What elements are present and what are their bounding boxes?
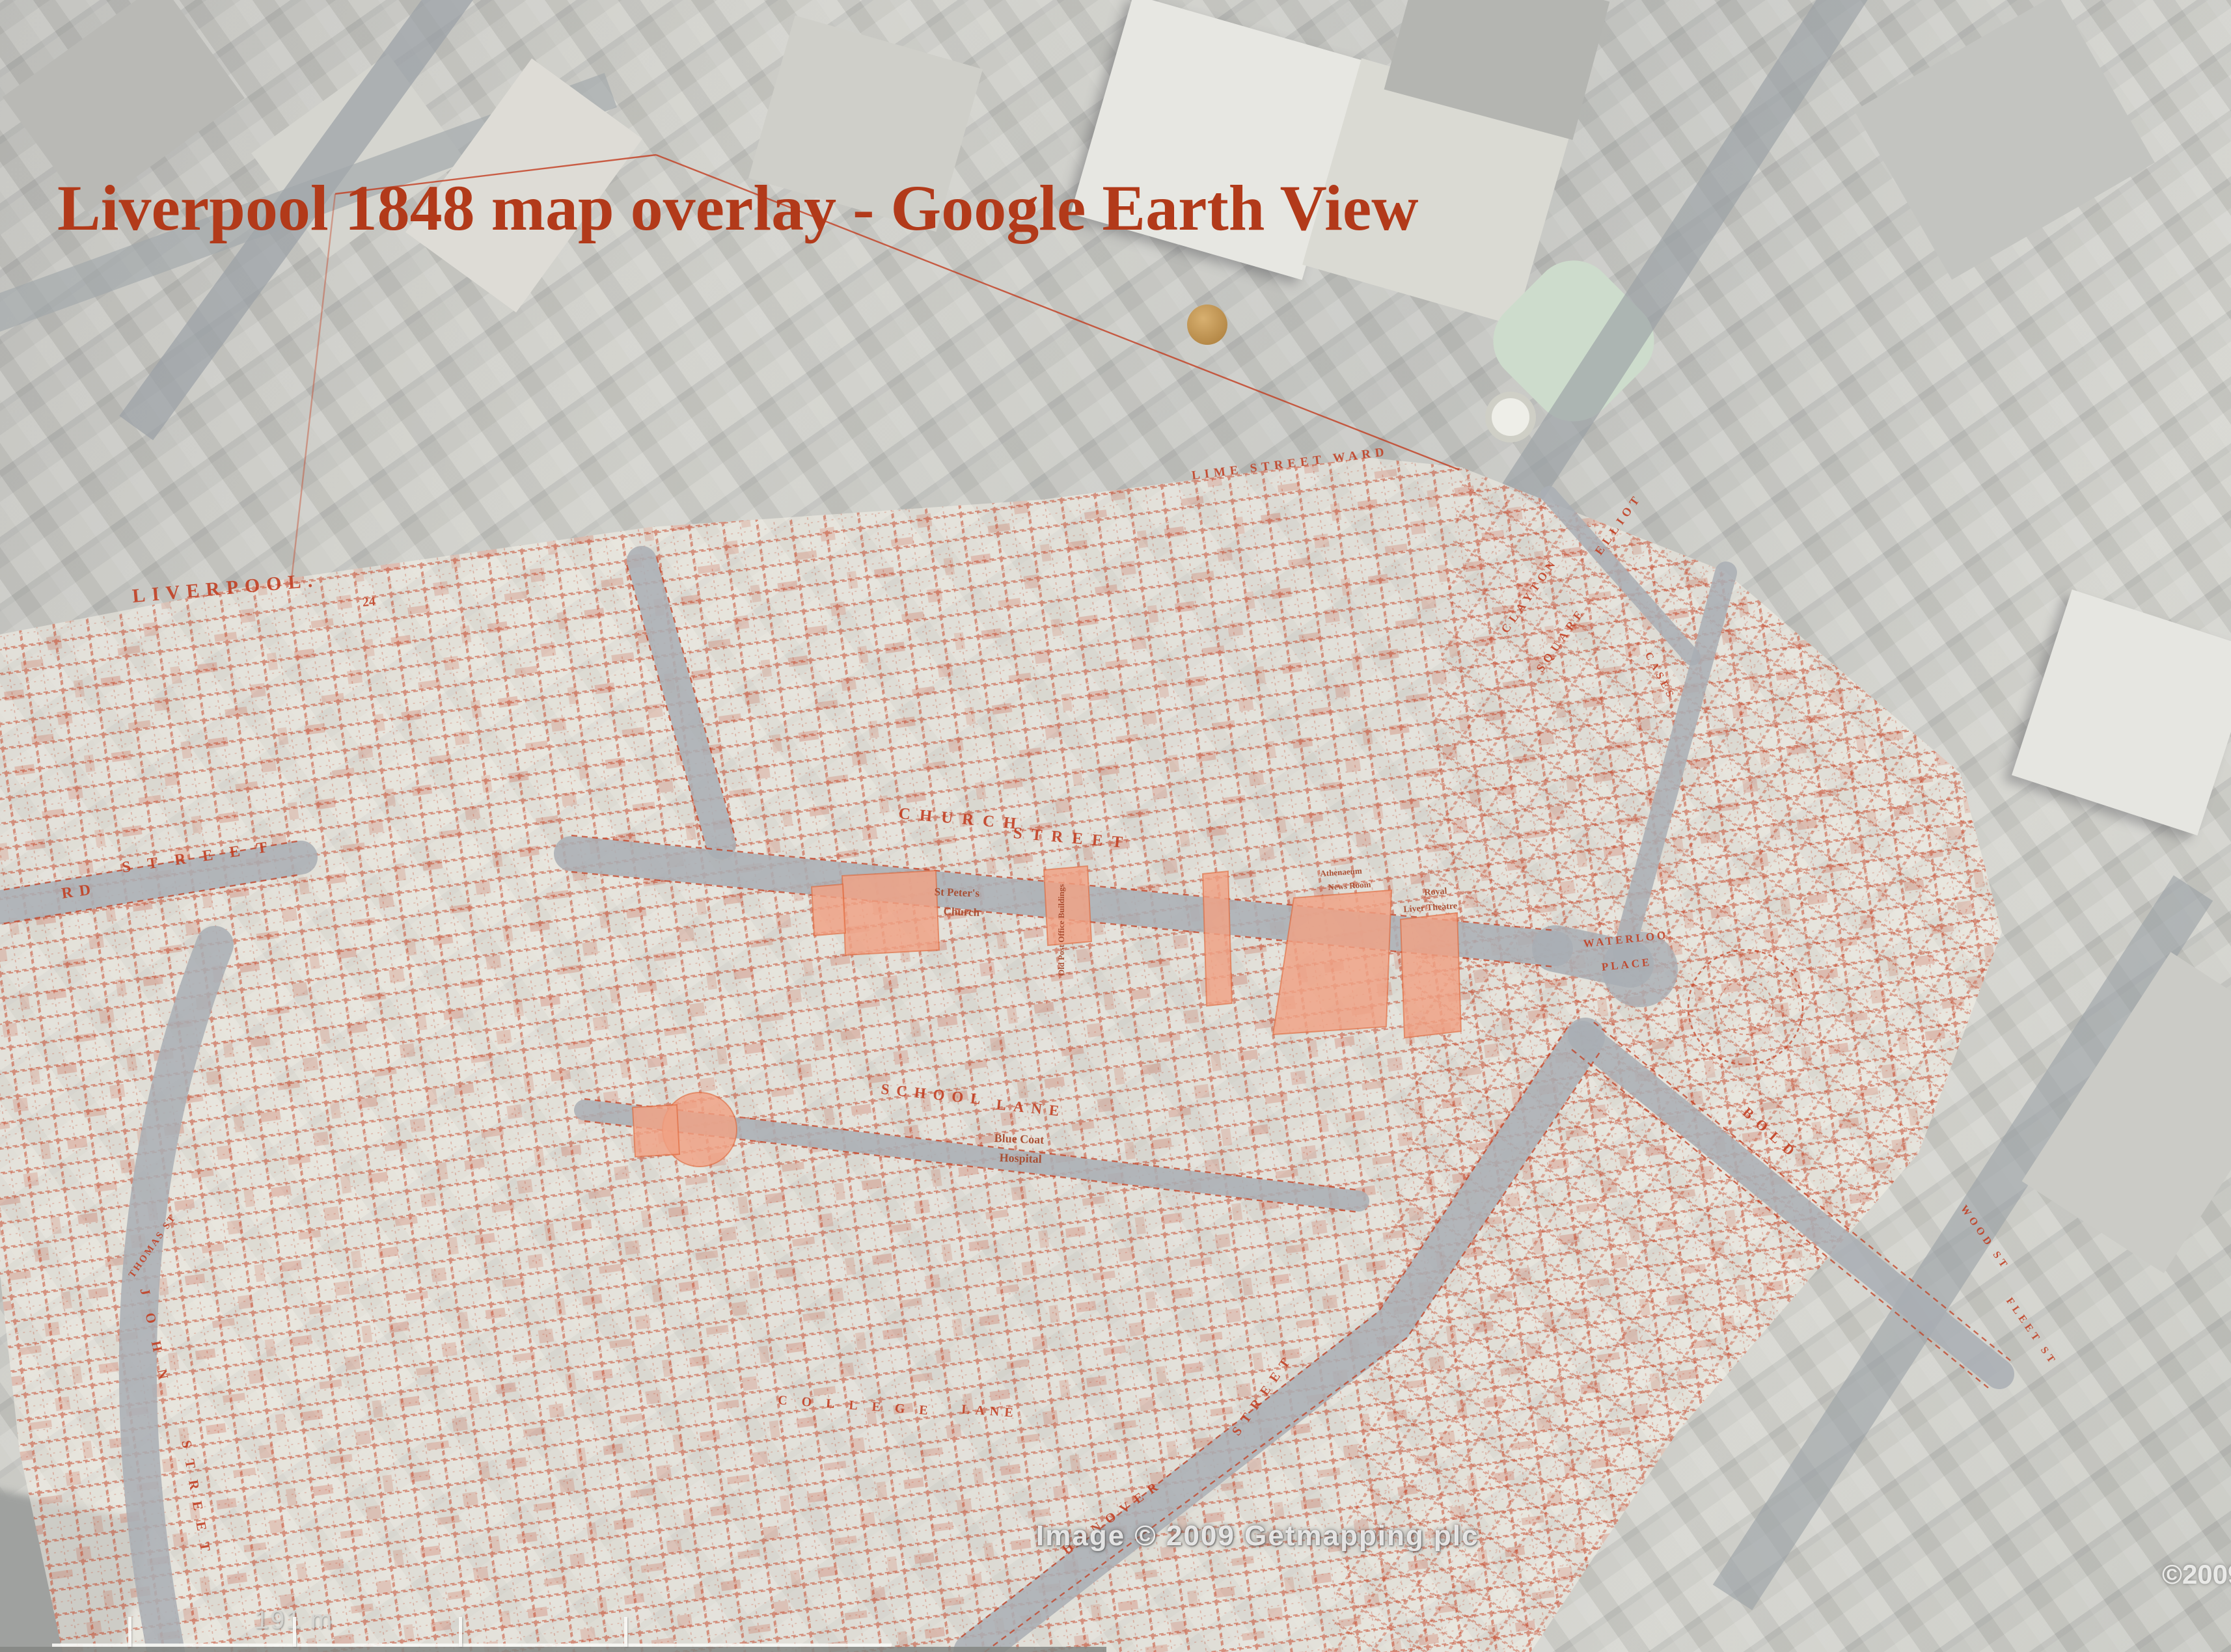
place-label-blue-coat-1: Blue Coat (994, 1132, 1044, 1146)
scale-tick (459, 1617, 462, 1647)
scale-tick (128, 1617, 131, 1647)
overlay-1848-map (0, 0, 2231, 1652)
scale-bar-line (0, 1647, 1106, 1652)
copyright-fragment: ©2009 (2162, 1559, 2231, 1590)
highlighted-building-old-post-office (1044, 866, 1091, 945)
scale-tick (293, 1617, 296, 1647)
place-label-st-peters-1: St Peter's (934, 886, 979, 899)
highlighted-building-st-peters-wing (812, 884, 845, 936)
highlighted-building-theatre (1401, 913, 1461, 1038)
highlighted-building-strip (1203, 871, 1232, 1006)
scale-bar: 191 m (0, 1588, 1139, 1652)
page-title: Liverpool 1848 map overlay - Google Eart… (57, 174, 1418, 242)
place-label-royal-1: Royal (1424, 887, 1447, 898)
highlighted-building-rotunda-wing (633, 1105, 679, 1157)
sheet-number-label: 24 (362, 595, 376, 609)
place-label-old-post-office: Old Post Office Buildings (1057, 884, 1065, 976)
google-earth-view[interactable]: LIVERPOOL. 24 LIME STREET WARD CHURCH ST… (0, 0, 2231, 1652)
highlighted-building-st-peters (842, 871, 939, 955)
place-label-blue-coat-2: Hospital (999, 1152, 1042, 1165)
place-label-st-peters-2: Church (943, 906, 979, 918)
scale-tick (624, 1617, 627, 1647)
imagery-credit: Image © 2009 Getmapping plc (1036, 1520, 1479, 1552)
